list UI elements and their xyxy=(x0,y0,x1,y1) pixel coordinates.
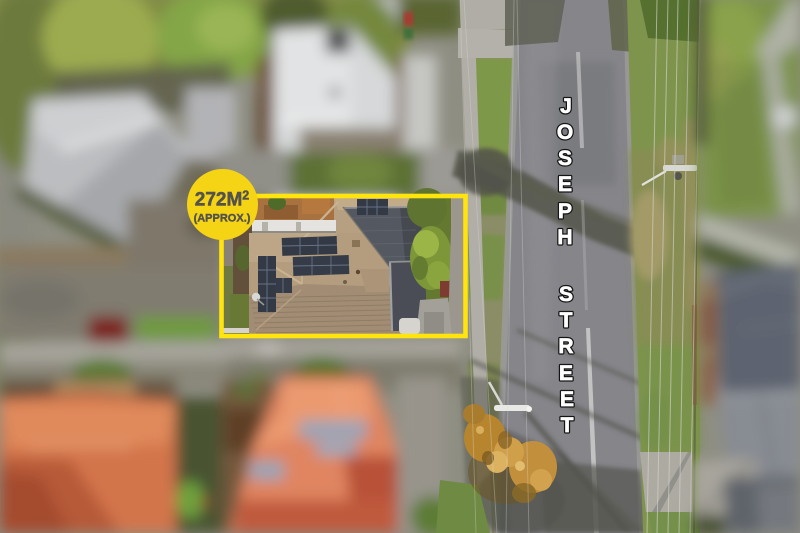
svg-text:O: O xyxy=(557,121,573,144)
svg-text:E: E xyxy=(560,388,574,411)
svg-text:E: E xyxy=(559,362,573,385)
svg-text:T: T xyxy=(561,414,574,437)
svg-text:S: S xyxy=(558,147,572,170)
svg-text:P: P xyxy=(558,200,572,223)
svg-text:272M2: 272M2 xyxy=(195,189,250,211)
svg-text:T: T xyxy=(560,309,573,332)
svg-text:H: H xyxy=(557,226,572,249)
svg-text:(APPROX.): (APPROX.) xyxy=(194,213,251,225)
svg-text:J: J xyxy=(560,95,572,118)
svg-text:S: S xyxy=(559,283,573,306)
svg-text:E: E xyxy=(558,173,572,196)
svg-text:R: R xyxy=(558,335,573,358)
